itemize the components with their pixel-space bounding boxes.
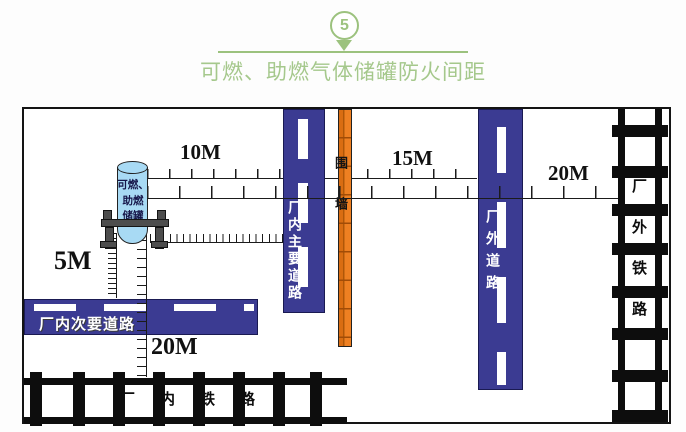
title-divider xyxy=(218,51,468,53)
badge-pointer-icon xyxy=(336,40,352,51)
enclosure-wall: 围墙 xyxy=(338,109,352,347)
tank-label-line1: 可燃、 xyxy=(112,178,154,194)
tank-support-foot xyxy=(151,241,168,248)
distance-label-outer-railway: 20M xyxy=(548,161,589,186)
distance-label-secondary-road: 5M xyxy=(54,246,92,276)
outer-road-label: 厂外道路 xyxy=(483,209,503,297)
railway-tie xyxy=(30,372,42,426)
outer-railway-label: 厂外铁路 xyxy=(628,178,649,342)
distance-label-main-road: 10M xyxy=(180,140,221,165)
gas-tank-top xyxy=(117,161,148,174)
tank-support-foot xyxy=(100,241,117,248)
distance-label-inner-railway: 20M xyxy=(151,334,198,361)
outer-road: 厂外道路 xyxy=(478,109,523,390)
railway-tie xyxy=(310,372,322,426)
railway-tie xyxy=(612,125,668,137)
gas-tank-label: 可燃、 助燃 储罐 xyxy=(112,178,154,225)
ruler-dense-to-main-road xyxy=(150,234,283,243)
inner-railway-label: 厂内铁路 xyxy=(120,388,280,409)
distance-label-outer-road: 15M xyxy=(392,146,433,171)
railway-tie xyxy=(73,372,85,426)
diagram-canvas: 5 可燃、助燃气体储罐防火间距 10M 15M 20M 5M 20M 厂内主要道… xyxy=(0,0,686,432)
inner-railway: 厂内铁路 xyxy=(24,372,347,426)
page-title: 可燃、助燃气体储罐防火间距 xyxy=(0,56,686,86)
tank-support-beam xyxy=(101,219,169,227)
section-number-badge: 5 xyxy=(330,11,359,40)
ruler-20m-vertical xyxy=(137,231,147,377)
main-road: 厂内主要道路 xyxy=(283,109,325,313)
main-road-label: 厂内主要道路 xyxy=(285,200,305,302)
ruler-20m-to-outer-railway xyxy=(147,186,618,199)
railway-tie xyxy=(612,166,668,178)
outer-railway: 厂外铁路 xyxy=(612,109,668,422)
tank-label-line2: 助燃 xyxy=(112,194,154,210)
railway-tie xyxy=(612,410,668,422)
secondary-road-label: 厂内次要道路 xyxy=(39,313,135,334)
railway-tie xyxy=(612,370,668,382)
